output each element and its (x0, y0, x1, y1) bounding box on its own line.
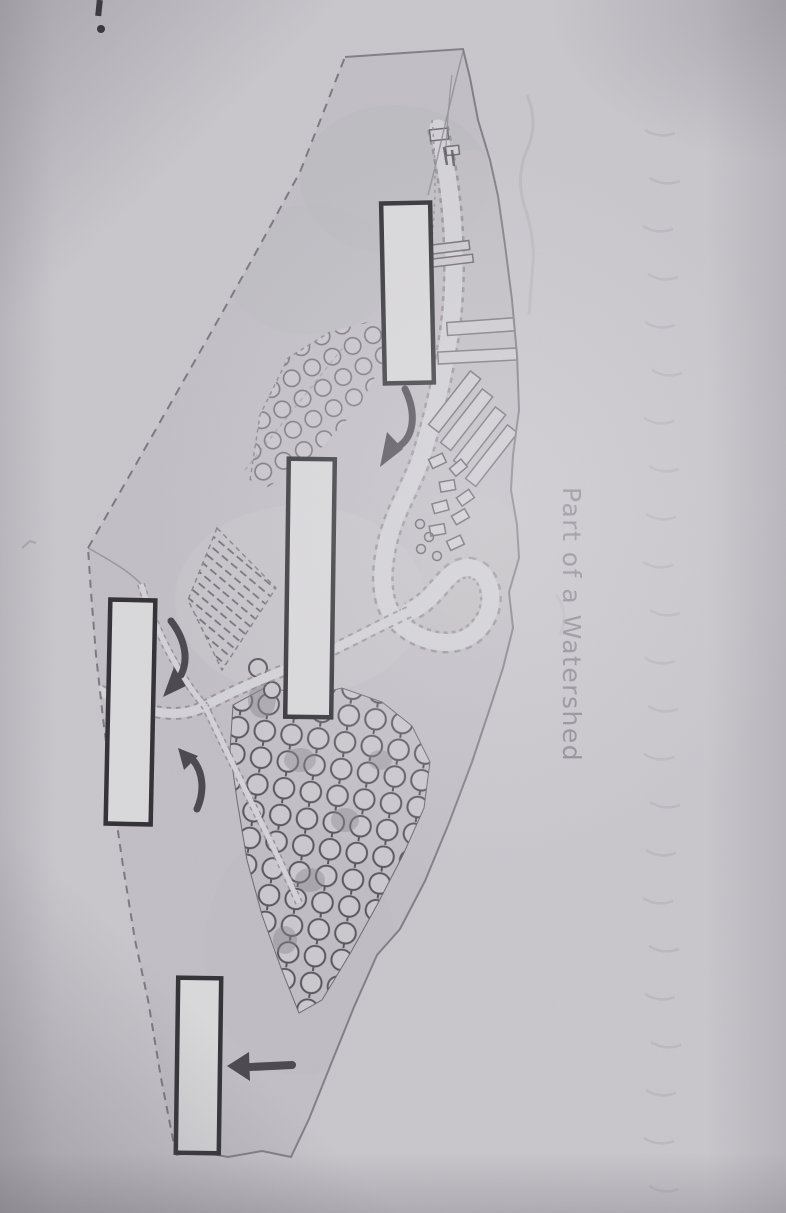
worksheet-photo: Part of a Watershed (0, 0, 786, 1213)
photo-grain (0, 0, 786, 1213)
watershed-diagram: Part of a Watershed (0, 0, 786, 1213)
